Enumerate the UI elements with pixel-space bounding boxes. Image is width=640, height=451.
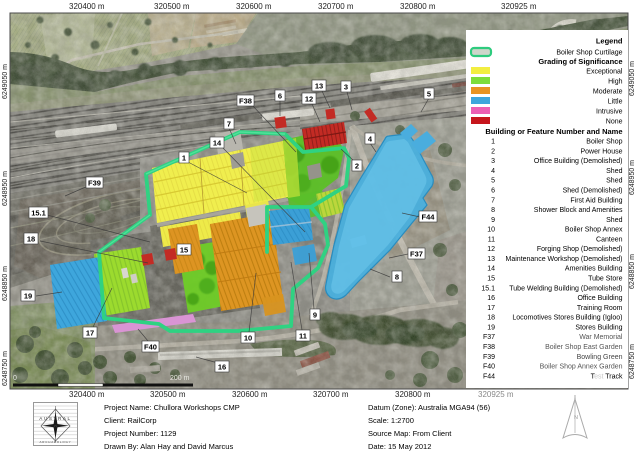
svg-text:Shed: Shed xyxy=(606,217,622,224)
svg-text:8: 8 xyxy=(395,273,399,282)
svg-text:Tube Welding Building (Demolis: Tube Welding Building (Demolished) xyxy=(509,285,622,292)
svg-text:Bowling Green: Bowling Green xyxy=(577,354,623,361)
svg-text:AUSTRAL: AUSTRAL xyxy=(39,416,71,421)
svg-text:Boiler Shop Annex Garden: Boiler Shop Annex Garden xyxy=(540,364,623,371)
svg-text:First Aid Building: First Aid Building xyxy=(570,197,622,204)
svg-text:16: 16 xyxy=(218,363,226,372)
svg-text:Grading of Significance: Grading of Significance xyxy=(538,57,622,66)
svg-text:Office Building (Demolished): Office Building (Demolished) xyxy=(534,158,623,165)
svg-text:Canteen: Canteen xyxy=(596,236,623,243)
svg-text:Intrusive: Intrusive xyxy=(596,108,623,115)
svg-text:Exceptional: Exceptional xyxy=(586,68,623,75)
svg-text:1: 1 xyxy=(182,154,186,163)
svg-text:11: 11 xyxy=(488,236,495,243)
svg-text:7: 7 xyxy=(227,120,231,129)
svg-text:4: 4 xyxy=(491,168,495,175)
svg-text:1: 1 xyxy=(491,139,495,146)
svg-text:Moderate: Moderate xyxy=(593,88,623,95)
svg-text:3: 3 xyxy=(491,158,495,165)
svg-text:F44: F44 xyxy=(422,213,436,222)
svg-text:0: 0 xyxy=(13,375,17,382)
svg-text:Boiler Shop: Boiler Shop xyxy=(586,139,622,146)
svg-text:High: High xyxy=(608,78,623,85)
svg-text:Building or Feature Number and: Building or Feature Number and Name xyxy=(485,127,622,136)
svg-text:Test Track: Test Track xyxy=(591,373,623,380)
svg-text:6: 6 xyxy=(491,188,495,195)
svg-text:F39: F39 xyxy=(483,354,495,361)
svg-text:5: 5 xyxy=(427,90,431,99)
svg-text:Office Building: Office Building xyxy=(577,295,622,302)
svg-text:15.1: 15.1 xyxy=(481,285,495,292)
svg-text:F38: F38 xyxy=(239,97,252,106)
svg-text:Power House: Power House xyxy=(580,148,622,155)
svg-text:F37: F37 xyxy=(483,334,495,341)
svg-text:Boiler Shop Annex: Boiler Shop Annex xyxy=(565,227,623,234)
svg-text:Amenities Building: Amenities Building xyxy=(565,266,623,273)
svg-text:2: 2 xyxy=(491,148,495,155)
svg-text:Little: Little xyxy=(608,98,623,105)
svg-text:Shower Block and Amenities: Shower Block and Amenities xyxy=(534,207,623,214)
svg-text:15: 15 xyxy=(180,246,188,255)
svg-text:2: 2 xyxy=(355,162,359,171)
svg-text:Shed: Shed xyxy=(606,168,622,175)
svg-text:7: 7 xyxy=(491,197,495,204)
svg-text:12: 12 xyxy=(305,95,313,104)
svg-text:Tube Store: Tube Store xyxy=(588,276,622,283)
svg-text:15: 15 xyxy=(487,276,495,283)
svg-text:F39: F39 xyxy=(88,179,101,188)
svg-text:13: 13 xyxy=(315,82,323,91)
svg-text:Shed: Shed xyxy=(606,178,622,185)
svg-text:9: 9 xyxy=(313,311,317,320)
svg-text:10: 10 xyxy=(244,334,252,343)
svg-text:14: 14 xyxy=(213,139,222,148)
svg-text:N: N xyxy=(574,415,578,421)
svg-text:200 m: 200 m xyxy=(170,375,190,382)
svg-text:F38: F38 xyxy=(483,344,495,351)
svg-text:10: 10 xyxy=(487,227,495,234)
svg-text:17: 17 xyxy=(487,305,495,312)
svg-text:Shed (Demolished): Shed (Demolished) xyxy=(563,188,623,195)
svg-text:16: 16 xyxy=(487,295,495,302)
svg-text:18: 18 xyxy=(487,315,495,322)
svg-text:19: 19 xyxy=(487,324,495,331)
svg-text:Maintenance Workshop (Demolish: Maintenance Workshop (Demolished) xyxy=(506,256,623,263)
svg-text:9: 9 xyxy=(491,217,495,224)
svg-text:13: 13 xyxy=(487,256,495,263)
svg-text:Forging Shop (Demolished): Forging Shop (Demolished) xyxy=(537,246,623,253)
svg-text:17: 17 xyxy=(86,329,94,338)
svg-text:Training Room: Training Room xyxy=(577,305,623,312)
svg-text:12: 12 xyxy=(487,246,495,253)
svg-text:Boiler Shop East Garden: Boiler Shop East Garden xyxy=(545,344,623,351)
svg-text:15.1: 15.1 xyxy=(31,209,46,218)
svg-text:War Memorial: War Memorial xyxy=(579,334,623,341)
svg-text:F37: F37 xyxy=(410,250,423,259)
svg-text:19: 19 xyxy=(24,292,32,301)
svg-text:3: 3 xyxy=(344,83,348,92)
svg-text:18: 18 xyxy=(27,235,35,244)
svg-text:5: 5 xyxy=(491,178,495,185)
svg-text:F40: F40 xyxy=(144,343,157,352)
svg-text:6: 6 xyxy=(278,92,282,101)
svg-text:F40: F40 xyxy=(483,364,495,371)
svg-text:Boiler Shop Curtilage: Boiler Shop Curtilage xyxy=(556,50,622,57)
svg-text:ARCHAEOLOGY: ARCHAEOLOGY xyxy=(40,440,72,444)
svg-text:None: None xyxy=(606,118,623,125)
svg-text:11: 11 xyxy=(299,332,307,341)
svg-text:Legend: Legend xyxy=(596,37,623,46)
svg-text:8: 8 xyxy=(491,207,495,214)
svg-text:Stores Building: Stores Building xyxy=(575,324,622,331)
svg-text:Locomotives Stores Building (I: Locomotives Stores Building (Igloo) xyxy=(512,315,622,322)
svg-text:14: 14 xyxy=(487,266,495,273)
svg-text:F44: F44 xyxy=(483,373,495,380)
